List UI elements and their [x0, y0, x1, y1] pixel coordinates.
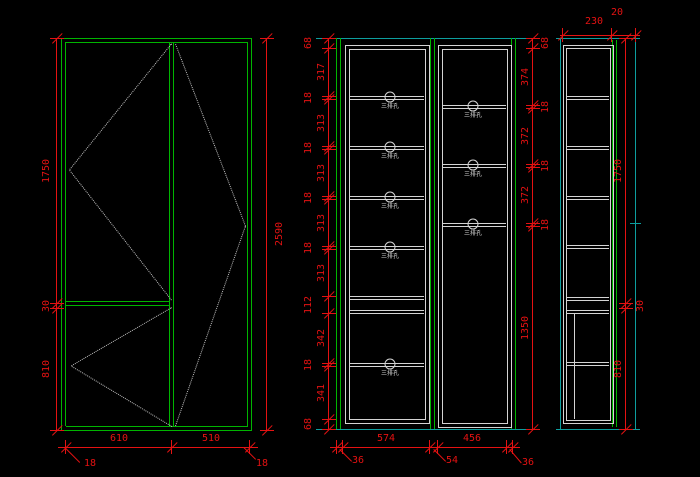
cad-canvas: 17503081025906105101818三排孔三排孔三排孔三排孔三排孔三排… [0, 0, 700, 477]
dimension-label: 112 [304, 295, 314, 313]
cabinet-outline-line [66, 426, 248, 427]
cam-fitting-label: 三排孔 [381, 154, 399, 160]
top-edge-line [316, 38, 536, 39]
dimension-label: 30 [636, 299, 646, 311]
shelf-line [574, 313, 575, 419]
carcass-frame-line [515, 38, 516, 429]
dimension-label: 30 [42, 299, 52, 311]
dimension-label: 810 [42, 360, 52, 378]
leader-line [509, 449, 522, 464]
shelf-line [566, 99, 609, 100]
cabinet-outline-line [62, 430, 252, 431]
door-divider-line [169, 42, 170, 426]
door-swing-line [69, 43, 172, 170]
cabinet-outline-line [61, 38, 62, 430]
shelf-line [566, 300, 609, 301]
dimension-label: 36 [522, 458, 534, 468]
carcass-frame-line [336, 38, 337, 429]
dimension-label: 313 [317, 163, 327, 181]
cam-fitting-label: 三排孔 [381, 104, 399, 110]
cam-fitting-label: 三排孔 [464, 113, 482, 119]
side-edge-line [560, 38, 561, 429]
dimension-label: 18 [541, 218, 551, 230]
dimension-label: 342 [317, 329, 327, 347]
door-swing-line [175, 44, 246, 226]
dimension-line [532, 38, 533, 429]
door-swing-line [71, 366, 172, 427]
dimension-label: 372 [521, 186, 531, 204]
cam-fitting-label: 三排孔 [381, 371, 399, 377]
dimension-label: 1350 [521, 315, 531, 339]
dimension-label: 18 [541, 100, 551, 112]
dimension-label: 313 [317, 213, 327, 231]
dimension-label: 18 [541, 159, 551, 171]
carcass-frame-line [340, 38, 341, 429]
shelf-line [566, 365, 609, 366]
dimension-label: 18 [304, 358, 314, 370]
dimension-label: 1750 [614, 158, 624, 182]
dimension-label: 68 [304, 418, 314, 430]
dimension-label: 374 [521, 67, 531, 85]
shelf-line [566, 362, 609, 363]
shelf-line [349, 299, 424, 300]
dimension-label: 20 [611, 8, 623, 18]
dimension-label: 456 [463, 434, 481, 444]
dimension-label: 36 [352, 456, 364, 466]
shelf-line [349, 310, 424, 311]
dimension-label: 230 [585, 17, 603, 27]
shelf-line [566, 199, 609, 200]
cam-fitting-circle [385, 192, 396, 203]
dimension-label: 1750 [42, 158, 52, 182]
dimension-label: 18 [304, 91, 314, 103]
dimension-label: 317 [317, 63, 327, 81]
carcass-frame-line [434, 38, 435, 429]
shelf-line [349, 296, 424, 297]
shelf-line [349, 313, 424, 314]
cam-fitting-circle [468, 219, 479, 230]
midpoint-tick [630, 223, 641, 224]
cam-fitting-label: 三排孔 [464, 172, 482, 178]
dimension-line [56, 38, 57, 430]
cabinet-outline-line [62, 38, 252, 39]
cam-fitting-label: 三排孔 [464, 231, 482, 237]
cam-fitting-label: 三排孔 [381, 254, 399, 260]
dimension-line [266, 38, 267, 430]
door-rail-line [66, 301, 170, 302]
shelf-line [566, 313, 609, 314]
shelf-line [566, 149, 609, 150]
shelf-line [566, 248, 609, 249]
dimension-line [330, 447, 520, 448]
shelf-line [566, 96, 609, 97]
dimension-label: 313 [317, 263, 327, 281]
bottom-edge-line [316, 429, 536, 430]
shelf-line [566, 297, 609, 298]
leader-line [339, 449, 352, 462]
cam-fitting-label: 三排孔 [381, 204, 399, 210]
carcass-frame-line [430, 38, 431, 429]
door-rail-line [66, 305, 170, 306]
cam-fitting-circle [468, 101, 479, 112]
shelf-line [566, 196, 609, 197]
door-divider-line [173, 42, 174, 426]
shelf-line [566, 245, 609, 246]
cam-fitting-circle [385, 142, 396, 153]
door-swing-line [72, 307, 172, 366]
dimension-label: 372 [521, 127, 531, 145]
leader-line [65, 448, 80, 463]
cam-fitting-circle [468, 160, 479, 171]
dimension-label: 18 [84, 459, 96, 469]
dimension-label: 18 [304, 191, 314, 203]
dimension-label: 68 [304, 37, 314, 49]
cam-fitting-circle [385, 242, 396, 253]
dimension-label: 313 [317, 113, 327, 131]
shelf-line [566, 146, 609, 147]
cabinet-outline-line [247, 42, 248, 426]
dimension-line [58, 447, 258, 448]
dimension-label: 54 [446, 456, 458, 466]
dimension-label: 610 [110, 434, 128, 444]
dimension-label: 574 [377, 434, 395, 444]
cabinet-outline-line [251, 38, 252, 430]
dimension-label: 2590 [275, 222, 285, 246]
dimension-label: 810 [614, 359, 624, 377]
cam-fitting-circle [385, 359, 396, 370]
shelf-line [566, 310, 609, 311]
door-swing-line [175, 226, 246, 426]
dimension-label: 68 [541, 37, 551, 49]
dimension-label: 341 [317, 383, 327, 401]
dimension-label: 18 [256, 459, 268, 469]
dimension-line [625, 38, 626, 429]
cabinet-outline-line [65, 42, 66, 426]
leader-line [433, 449, 446, 462]
side-edge-line [635, 38, 636, 429]
dimension-label: 18 [304, 241, 314, 253]
cam-fitting-circle [385, 92, 396, 103]
dimension-label: 510 [202, 434, 220, 444]
dimension-label: 18 [304, 141, 314, 153]
door-swing-line [69, 170, 172, 301]
cabinet-outline-line [66, 42, 248, 43]
